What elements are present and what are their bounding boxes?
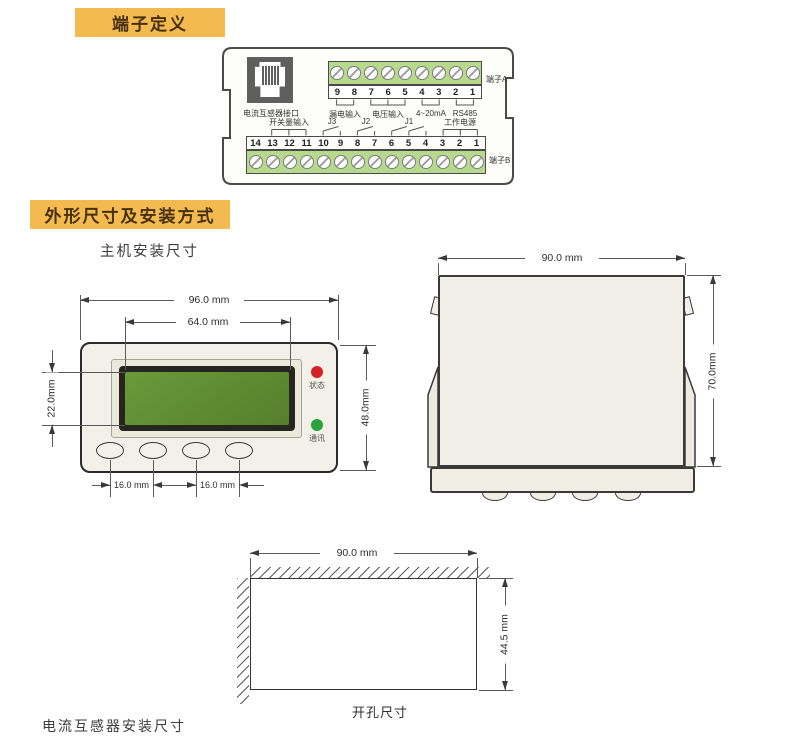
comm-led-label: 通讯 [304, 433, 330, 444]
front-panel-button-1 [96, 442, 124, 459]
manual-page: { "section_terminal": { "title": "端子定义" … [0, 0, 800, 726]
cutout-caption: 开孔尺寸 [330, 702, 430, 721]
group-label-switch-input: 开关量输入 [259, 117, 319, 128]
dim-arrow [153, 482, 162, 488]
section-title-terminal-definition: 端子定义 [75, 8, 225, 37]
dim-arrow [49, 363, 55, 372]
dim-label-96mm: 96.0 mm [174, 294, 244, 307]
front-bezel-edge [430, 467, 695, 493]
dim-label-cutout-90mm: 90.0 mm [320, 547, 394, 560]
dim-label-48mm: 48.0mm [360, 381, 373, 435]
terminal-diagram: 电流互感器接口 9 8 7 6 5 4 3 2 1 端子A 14 13 12 1… [222, 47, 514, 186]
leader-line [110, 460, 111, 497]
ext-line [340, 345, 376, 346]
status-led-label: 状态 [304, 380, 330, 391]
lcd-screen [125, 372, 289, 425]
section-title-dimensions: 外形尺寸及安装方式 [30, 200, 230, 229]
subtitle-main-unit-dimensions: 主机安装尺寸 [100, 240, 199, 261]
dim-arrow [239, 482, 248, 488]
dim-arrow [438, 255, 447, 261]
side-view-drawing: 90.0 mm 70.0mm [425, 245, 735, 505]
dim-arrow [250, 550, 259, 556]
dim-arrow [502, 578, 508, 587]
dim-arrow [710, 275, 716, 284]
dim-arrow [101, 482, 110, 488]
group-label-working-power: 工作电源 [430, 117, 490, 128]
front-panel-button-3 [182, 442, 210, 459]
dim-label-90mm: 90.0 mm [525, 252, 599, 265]
cutout-rectangle [250, 578, 477, 690]
ext-line [438, 263, 439, 275]
group-label-j3: J3 [317, 117, 347, 126]
dim-label-16mm-right: 16.0 mm [198, 479, 237, 492]
dim-arrow [363, 345, 369, 354]
dim-arrow [710, 457, 716, 466]
dim-label-44mm: 44.5 mm [499, 606, 512, 664]
dim-arrow [363, 461, 369, 470]
dim-arrow [49, 425, 55, 434]
hatch-top [250, 567, 490, 578]
status-led [311, 366, 323, 378]
front-panel-button-2 [139, 442, 167, 459]
dim-label-22mm: 22.0mm [46, 373, 59, 425]
ext-line [697, 466, 721, 467]
leader-line [196, 460, 197, 497]
dim-arrow [281, 319, 290, 325]
dim-arrow [502, 681, 508, 690]
front-view-drawing: 状态 通讯 96.0 mm 64.0 mm 22.0mm 48.0mm 16.0… [40, 290, 385, 505]
dim-arrow [468, 550, 477, 556]
comm-led [311, 419, 323, 431]
front-panel-button-4 [225, 442, 253, 459]
ext-line [340, 470, 376, 471]
dim-label-16mm-left: 16.0 mm [112, 479, 151, 492]
dim-line [248, 485, 264, 486]
ext-line [479, 690, 513, 691]
hatch-left [237, 578, 249, 704]
ext-line [338, 295, 339, 340]
leader-line [239, 460, 240, 497]
ext-line [290, 317, 291, 370]
dim-arrow [125, 319, 134, 325]
dim-arrow [676, 255, 685, 261]
ext-line [685, 263, 686, 275]
dim-arrow [80, 297, 89, 303]
dim-label-70mm: 70.0mm [707, 345, 720, 399]
leader-line [153, 460, 154, 497]
panel-cutout-drawing: 90.0 mm 44.5 mm 开孔尺寸 [225, 540, 535, 726]
clipped-next-section-text: 电流互感器安装尺寸 [42, 716, 186, 736]
device-body-side [438, 275, 685, 467]
group-label-j1: J1 [394, 117, 424, 126]
dim-arrow [329, 297, 338, 303]
group-label-j2: J2 [351, 117, 381, 126]
dim-label-64mm: 64.0 mm [176, 316, 240, 329]
dim-arrow [187, 482, 196, 488]
dim-line [162, 485, 178, 486]
